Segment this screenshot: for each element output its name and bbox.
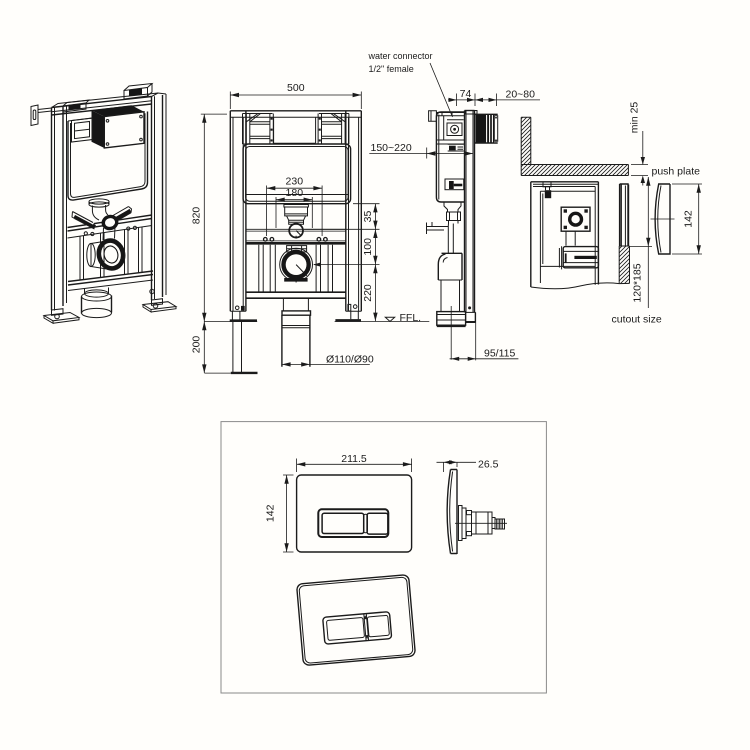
svg-text:142: 142	[683, 210, 695, 228]
svg-text:26.5: 26.5	[478, 459, 499, 471]
svg-text:water connector: water connector	[368, 51, 433, 61]
svg-text:1/2" female: 1/2" female	[369, 64, 414, 74]
svg-text:142: 142	[265, 504, 277, 522]
svg-text:cutout size: cutout size	[612, 314, 662, 326]
svg-text:min 25: min 25	[629, 102, 641, 134]
svg-text:100: 100	[362, 238, 374, 256]
svg-text:220: 220	[362, 284, 374, 302]
svg-text:120*185: 120*185	[632, 263, 644, 302]
svg-text:500: 500	[287, 82, 305, 94]
svg-text:35: 35	[362, 211, 374, 223]
svg-text:820: 820	[191, 207, 203, 225]
svg-text:Ø110/Ø90: Ø110/Ø90	[326, 354, 374, 366]
svg-text:230: 230	[286, 176, 304, 188]
svg-text:74: 74	[460, 88, 472, 100]
svg-text:211.5: 211.5	[341, 453, 367, 465]
svg-text:180: 180	[286, 187, 304, 199]
svg-text:150~220: 150~220	[371, 142, 412, 154]
svg-text:200: 200	[191, 336, 203, 354]
svg-text:20~80: 20~80	[506, 89, 536, 101]
svg-text:FFL.: FFL.	[400, 312, 422, 324]
svg-text:push plate: push plate	[652, 166, 701, 178]
svg-text:95/115: 95/115	[484, 348, 515, 360]
